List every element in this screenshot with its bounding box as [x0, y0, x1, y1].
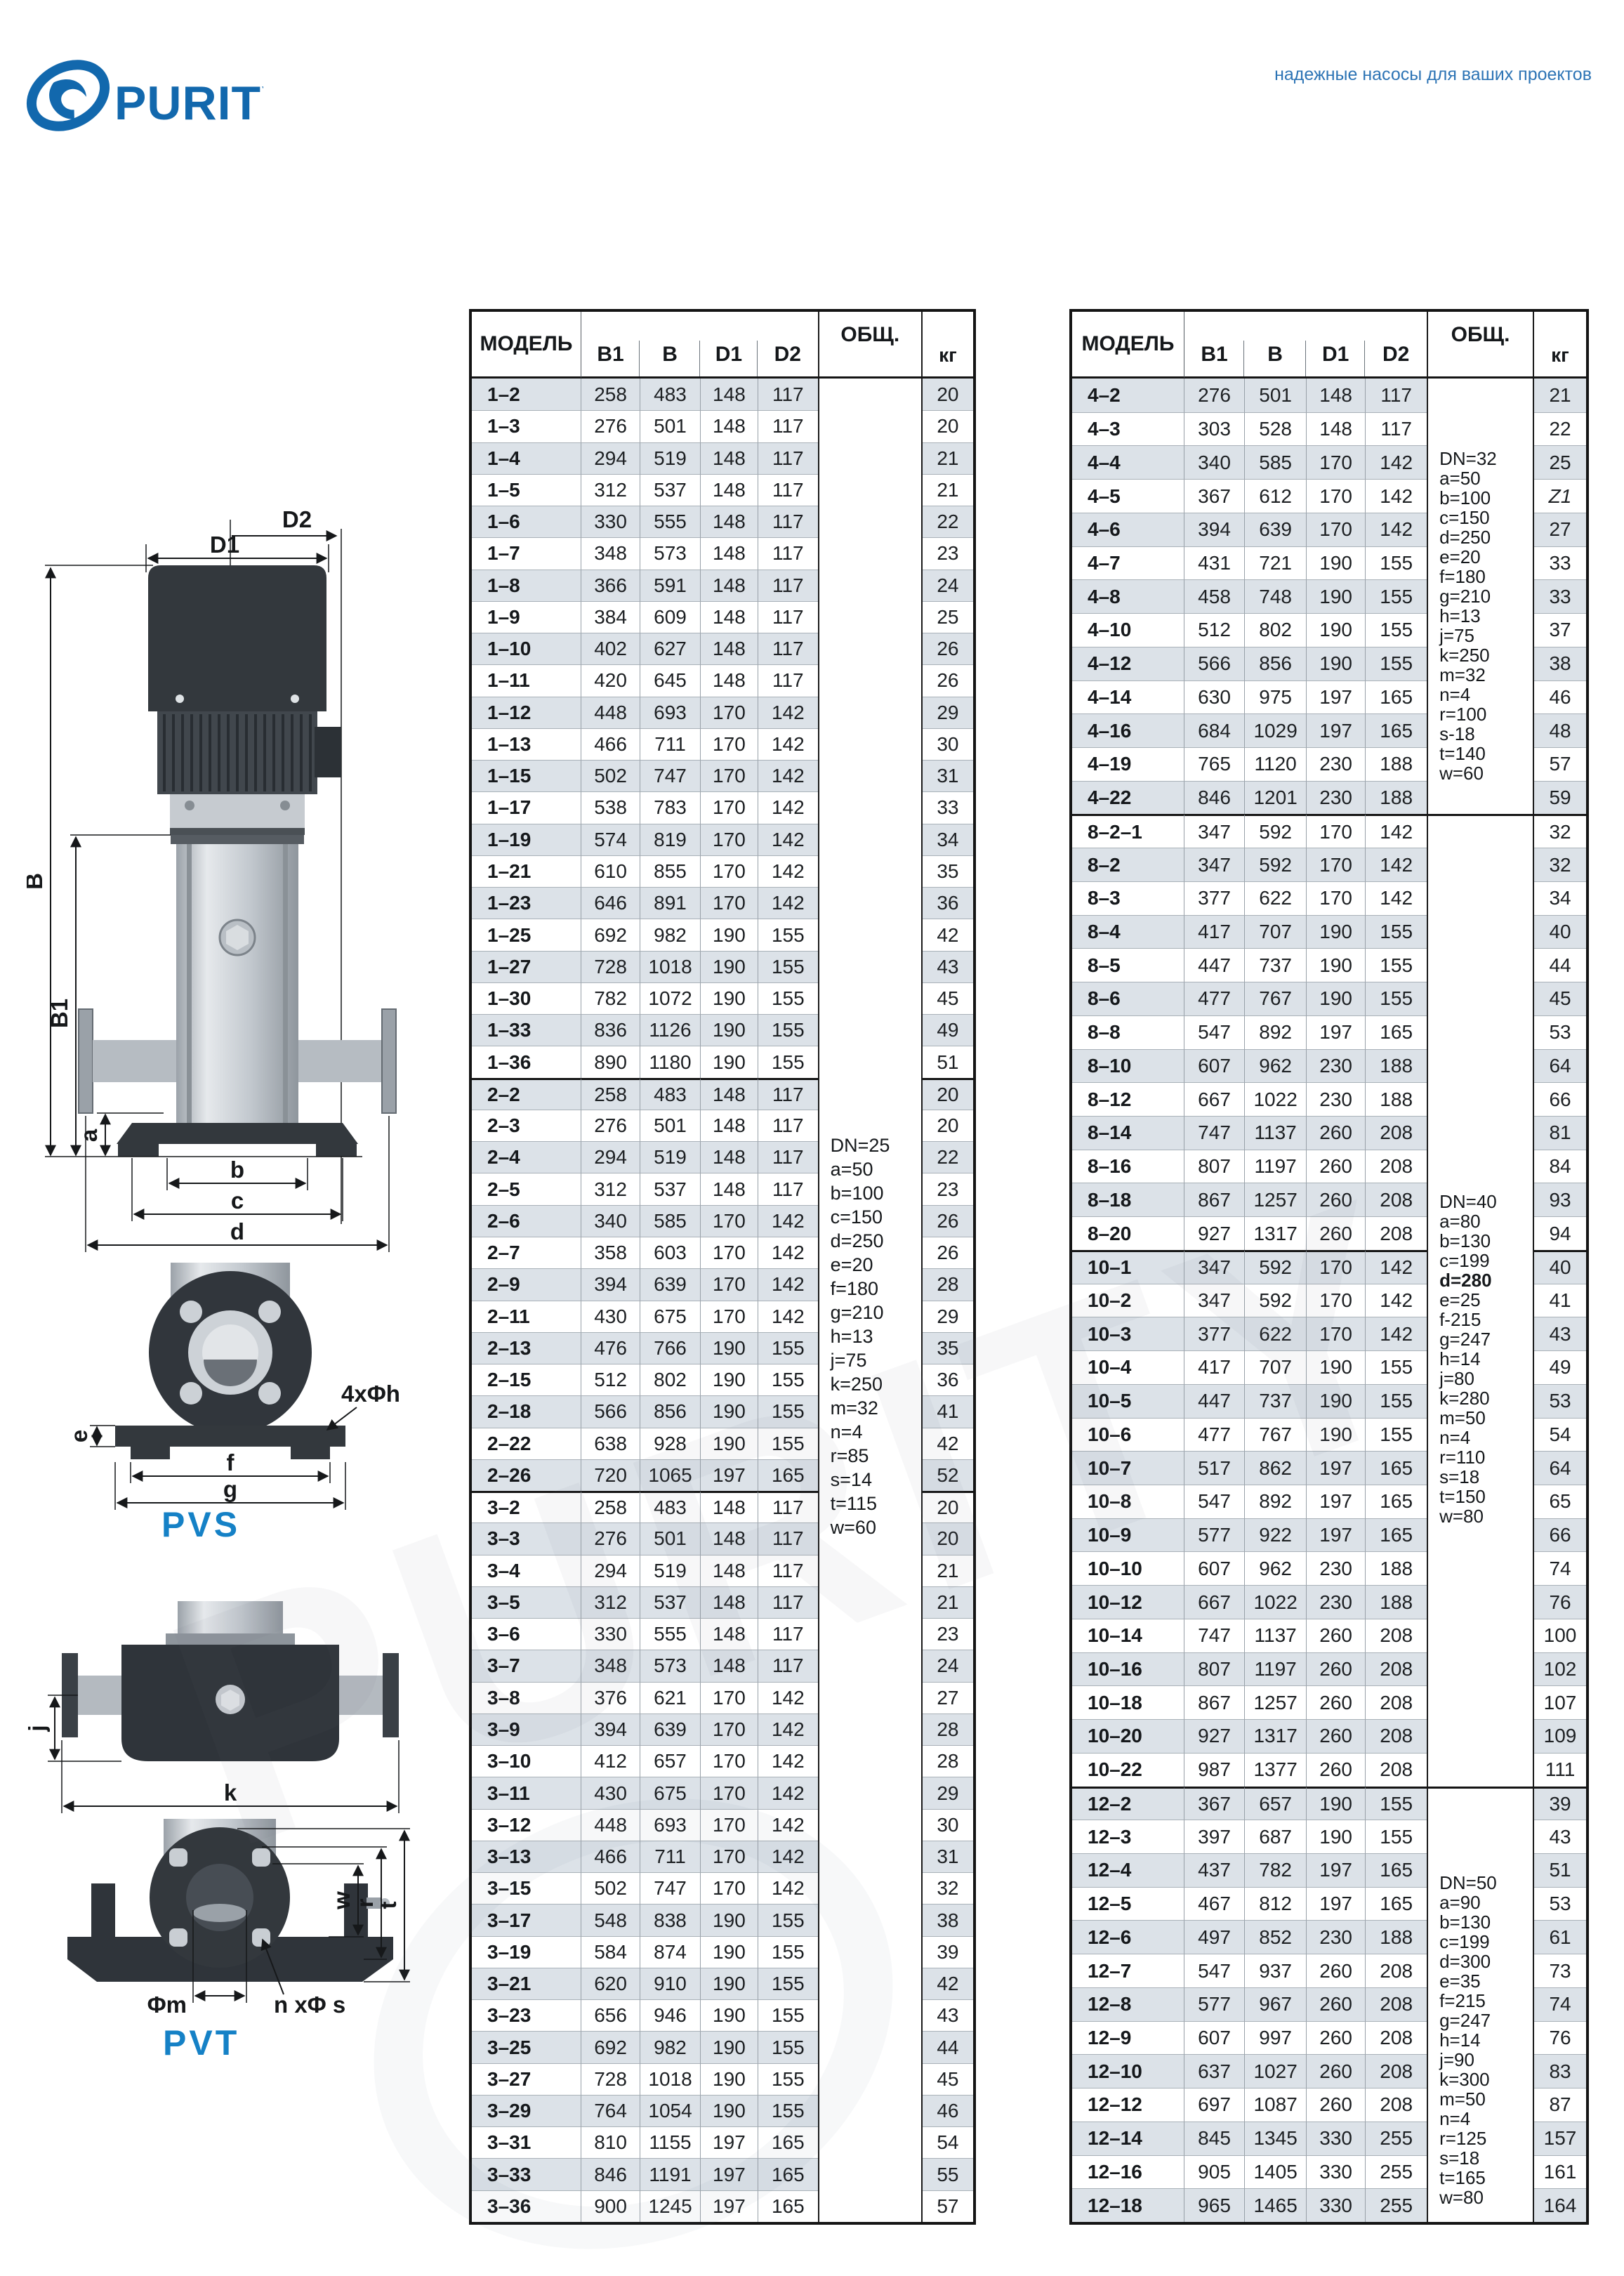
dim-cell: 1191	[640, 2158, 700, 2190]
dim-cell: 117	[758, 1141, 818, 1173]
dim-cell: 512	[581, 1364, 640, 1395]
dim-cell: 155	[758, 1968, 818, 1999]
dim-cell: 846	[581, 2158, 640, 2190]
dim-cell: 155	[1365, 1418, 1427, 1452]
weight-cell: 83	[1534, 2054, 1586, 2088]
header-kg: кг	[1534, 312, 1586, 379]
dim-cell: 348	[581, 537, 640, 569]
dim-cell: 477	[1184, 1418, 1244, 1452]
dim-cell: 117	[758, 601, 818, 633]
dim-cell: 142	[758, 1745, 818, 1777]
model-cell: 8–16	[1072, 1150, 1184, 1183]
note-line: t=115	[831, 1492, 877, 1515]
dim-cell: 230	[1306, 1049, 1365, 1083]
model-cell: 3–6	[472, 1618, 581, 1650]
model-cell: 10–16	[1072, 1652, 1184, 1686]
dim-cell: 170	[700, 824, 758, 855]
model-cell: 2–15	[472, 1364, 581, 1395]
dim-cell: 573	[640, 537, 700, 569]
dim-cell: 148	[700, 506, 758, 537]
dim-cell: 148	[700, 442, 758, 474]
dim-cell: 142	[1365, 479, 1427, 513]
weight-cell: 20	[923, 1110, 973, 1141]
dim-cell: 170	[1306, 881, 1365, 915]
dim-cell: 117	[758, 474, 818, 506]
dim-cell: 693	[640, 697, 700, 728]
model-cell: 4–8	[1072, 579, 1184, 613]
model-cell: 2–9	[472, 1268, 581, 1300]
dim-cell: 142	[758, 728, 818, 760]
dim-cell: 148	[700, 1650, 758, 1681]
dim-cell: 170	[700, 1237, 758, 1268]
dim-cell: 170	[700, 1205, 758, 1237]
dim-cell: 987	[1184, 1753, 1244, 1787]
weight-cell: 161	[1534, 2155, 1586, 2189]
dim-cell: 767	[1244, 1418, 1306, 1452]
dim-cell: 155	[1365, 1384, 1427, 1418]
dim-cell: 693	[640, 1809, 700, 1841]
weight-cell: 21	[923, 1586, 973, 1618]
dim-cell: 117	[758, 1618, 818, 1650]
weight-cell: 30	[923, 1809, 973, 1841]
dim-cell: 622	[1244, 881, 1306, 915]
dim-cell: 810	[581, 2126, 640, 2158]
dim-cell: 170	[700, 1713, 758, 1745]
dim-cell: 170	[700, 1682, 758, 1713]
dim-cell: 340	[581, 1205, 640, 1237]
dim-cell: 117	[758, 1110, 818, 1141]
note-line: w=60	[831, 1515, 876, 1539]
dim-cell: 117	[758, 537, 818, 569]
note-line: t=165	[1439, 2168, 1486, 2188]
dim-cell: 836	[581, 1014, 640, 1046]
dim-cell: 548	[581, 1904, 640, 1935]
model-cell: 8–3	[1072, 881, 1184, 915]
dim-cell: 1120	[1244, 747, 1306, 781]
dim-cell: 420	[581, 664, 640, 696]
dim-cell: 190	[1306, 915, 1365, 949]
dim-cell: 155	[758, 2031, 818, 2063]
weight-cell: 26	[923, 1237, 973, 1268]
dim-cell: 819	[640, 824, 700, 855]
motor-cap	[148, 565, 326, 711]
note-line: f=180	[1439, 567, 1486, 586]
dim-cell: 165	[1365, 1887, 1427, 1921]
dim-cell: 230	[1306, 781, 1365, 815]
dim-cell: 260	[1306, 1216, 1365, 1250]
dim-cell: 170	[1306, 445, 1365, 479]
dim-cell: 208	[1365, 1652, 1427, 1686]
weight-cell: 109	[1534, 1719, 1586, 1753]
page: PURITY надежные насосы для ваших проекто…	[0, 0, 1624, 2276]
dim-cell: 547	[1184, 1954, 1244, 1987]
model-cell: 1–36	[472, 1046, 581, 1077]
dim-cell: 276	[581, 1522, 640, 1554]
dim-cell: 997	[1244, 2021, 1306, 2055]
model-cell: 3–2	[472, 1491, 581, 1522]
note-line: w=60	[1439, 763, 1484, 783]
dim-cell: 330	[1306, 2155, 1365, 2189]
dim-cell: 607	[1184, 1551, 1244, 1585]
model-cell: 10–8	[1072, 1485, 1184, 1518]
dim-cell: 747	[1184, 1116, 1244, 1150]
dim-cell: 537	[640, 474, 700, 506]
note-line: e=25	[1439, 1290, 1481, 1310]
dim-label-r: r	[352, 1898, 378, 1907]
dim-cell: 208	[1365, 1150, 1427, 1183]
dim-cell: 148	[700, 474, 758, 506]
dim-cell: 142	[758, 1301, 818, 1332]
dim-cell: 208	[1365, 1954, 1427, 1987]
dim-cell: 148	[700, 1555, 758, 1586]
dim-label-g: g	[223, 1476, 237, 1502]
dim-cell: 258	[581, 1491, 640, 1522]
model-cell: 10–10	[1072, 1551, 1184, 1585]
weight-cell: 73	[1534, 1954, 1586, 1987]
note-line: h=14	[1439, 1349, 1481, 1369]
weight-cell: 59	[1534, 781, 1586, 815]
note-line: c=199	[1439, 1251, 1490, 1270]
note-line: w=80	[1439, 1506, 1484, 1526]
dim-cell: 607	[1184, 2021, 1244, 2055]
terminal-box	[315, 727, 341, 777]
dim-cell: 312	[581, 1586, 640, 1618]
dim-cell: 609	[640, 601, 700, 633]
dim-cell: 197	[700, 2126, 758, 2158]
dim-cell: 448	[581, 697, 640, 728]
model-cell: 2–6	[472, 1205, 581, 1237]
dim-cell: 497	[1184, 1920, 1244, 1954]
dim-cell: 190	[1306, 613, 1365, 647]
note-line: a=80	[1439, 1211, 1481, 1231]
weight-cell: 42	[923, 1428, 973, 1459]
dimensions-table-series-1-3: МОДЕЛЬB1BD1D2ОБЩ.кг1–2258483148117201–32…	[469, 309, 976, 2225]
model-cell: 8–2–1	[1072, 814, 1184, 848]
model-cell: 1–21	[472, 855, 581, 887]
weight-cell: 25	[923, 601, 973, 633]
dim-cell: 142	[758, 824, 818, 855]
dim-cell: 620	[581, 1968, 640, 1999]
dim-cell: 1180	[640, 1046, 700, 1077]
dim-cell: 117	[758, 1555, 818, 1586]
dim-label-b-height: B	[27, 873, 47, 890]
dim-cell: 412	[581, 1745, 640, 1777]
dim-label-base-b: b	[230, 1157, 244, 1183]
model-cell: 10–5	[1072, 1384, 1184, 1418]
note-line: h=13	[1439, 606, 1481, 626]
model-cell: 1–27	[472, 951, 581, 982]
dim-label-j: j	[27, 1725, 50, 1732]
coupling	[170, 794, 305, 834]
dim-cell: 197	[1306, 1451, 1365, 1485]
weight-cell: 38	[923, 1904, 973, 1935]
dim-cell: 910	[640, 1968, 700, 1999]
dim-cell: 170	[1306, 814, 1365, 848]
dim-cell: 197	[700, 1459, 758, 1491]
model-cell: 4–7	[1072, 546, 1184, 580]
dim-cell: 148	[700, 664, 758, 696]
dim-cell: 165	[1365, 1485, 1427, 1518]
pvs-front-view-drawing: 4xΦh e f g	[27, 1263, 434, 1515]
model-cell: 10–1	[1072, 1250, 1184, 1284]
dim-cell: 856	[1244, 647, 1306, 680]
note-line: s=18	[1439, 1467, 1479, 1487]
weight-cell: 66	[1534, 1518, 1586, 1552]
weight-cell: 23	[923, 1173, 973, 1204]
dim-cell: 867	[1184, 1685, 1244, 1719]
weight-cell: 32	[1534, 814, 1586, 848]
dim-cell: 348	[581, 1650, 640, 1681]
weight-cell: 57	[923, 2190, 973, 2222]
model-cell: 12–16	[1072, 2155, 1184, 2189]
dim-cell: 260	[1306, 1116, 1365, 1150]
dim-cell: 155	[758, 1395, 818, 1427]
dim-cell: 155	[1365, 948, 1427, 982]
weight-cell: 41	[923, 1395, 973, 1427]
note-line: b=130	[1439, 1912, 1491, 1932]
dim-cell: 639	[640, 1713, 700, 1745]
dim-cell: 258	[581, 379, 640, 410]
weight-cell: 64	[1534, 1049, 1586, 1083]
model-cell: 2–13	[472, 1332, 581, 1364]
dim-cell: 707	[1244, 915, 1306, 949]
dim-cell: 188	[1365, 1082, 1427, 1116]
dim-cell: 148	[1306, 412, 1365, 446]
dim-cell: 1087	[1244, 2088, 1306, 2122]
dim-cell: 639	[1244, 513, 1306, 546]
model-cell: 1–9	[472, 601, 581, 633]
dim-cell: 170	[1306, 1284, 1365, 1317]
note-line: d=280	[1439, 1270, 1491, 1290]
dim-cell: 764	[581, 2095, 640, 2126]
weight-cell: 157	[1534, 2122, 1586, 2155]
weight-cell: 49	[1534, 1350, 1586, 1384]
note-line: j=75	[831, 1348, 867, 1372]
model-cell: 3–23	[472, 1999, 581, 2031]
dim-cell: 747	[640, 1872, 700, 1904]
dim-cell: 117	[758, 1173, 818, 1204]
dim-cell: 190	[1306, 1350, 1365, 1384]
discharge-port	[298, 1040, 382, 1082]
dim-cell: 208	[1365, 1216, 1427, 1250]
dim-cell: 170	[700, 728, 758, 760]
dim-cell: 612	[1244, 479, 1306, 513]
weight-cell: 34	[923, 824, 973, 855]
note-line: r=85	[831, 1444, 869, 1468]
model-cell: 4–5	[1072, 479, 1184, 513]
dim-label-t: t	[375, 1902, 401, 1909]
dim-cell: 358	[581, 1237, 640, 1268]
dim-cell: 807	[1184, 1652, 1244, 1686]
header-d1: D1	[1306, 312, 1365, 379]
dim-cell: 728	[581, 951, 640, 982]
model-cell: 3–11	[472, 1777, 581, 1808]
dim-label-b1-height: B1	[46, 999, 72, 1028]
model-cell: 2–2	[472, 1078, 581, 1110]
dim-cell: 1345	[1244, 2122, 1306, 2155]
dim-cell: 845	[1184, 2122, 1244, 2155]
model-cell: 1–25	[472, 919, 581, 950]
dim-cell: 190	[1306, 982, 1365, 1015]
dim-cell: 330	[1306, 2122, 1365, 2155]
dim-cell: 155	[758, 1046, 818, 1077]
weight-cell: 74	[1534, 1987, 1586, 2021]
dim-cell: 1054	[640, 2095, 700, 2126]
dim-cell: 142	[758, 887, 818, 919]
dim-cell: 155	[1365, 1350, 1427, 1384]
dim-label-n-phi-s: n xΦ s	[274, 1992, 345, 2018]
dim-cell: 208	[1365, 2054, 1427, 2088]
dim-cell: 982	[640, 919, 700, 950]
note-line: DN=32	[1439, 449, 1497, 468]
dim-cell: 190	[700, 1046, 758, 1077]
dim-cell: 937	[1244, 1954, 1306, 1987]
dim-cell: 142	[758, 1682, 818, 1713]
model-cell: 4–22	[1072, 781, 1184, 815]
dim-cell: 638	[581, 1428, 640, 1459]
dim-cell: 303	[1184, 412, 1244, 446]
dim-cell: 142	[758, 1841, 818, 1872]
dim-cell: 142	[1365, 445, 1427, 479]
right-flange	[383, 1653, 399, 1737]
weight-cell: 28	[923, 1713, 973, 1745]
model-cell: 3–9	[472, 1713, 581, 1745]
dim-cell: 117	[758, 664, 818, 696]
dim-cell: 197	[1306, 1485, 1365, 1518]
model-cell: 1–7	[472, 537, 581, 569]
dim-cell: 142	[1365, 1250, 1427, 1284]
dim-cell: 720	[581, 1459, 640, 1491]
dim-cell: 501	[640, 1110, 700, 1141]
dim-cell: 190	[1306, 1384, 1365, 1418]
note-line: DN=40	[1439, 1192, 1497, 1211]
dim-cell: 155	[758, 1364, 818, 1395]
dim-cell: 190	[700, 1999, 758, 2031]
model-cell: 1–10	[472, 633, 581, 664]
note-line: t=140	[1439, 744, 1486, 763]
note-line: j=75	[1439, 626, 1474, 645]
dim-cell: 148	[700, 633, 758, 664]
dim-cell: 447	[1184, 948, 1244, 982]
weight-cell: 74	[1534, 1551, 1586, 1585]
weight-cell: 76	[1534, 1585, 1586, 1619]
model-cell: 12–7	[1072, 1954, 1184, 1987]
weight-cell: 31	[923, 1841, 973, 1872]
model-cell: 10–9	[1072, 1518, 1184, 1552]
dim-cell: 148	[1306, 379, 1365, 412]
dim-cell: 148	[700, 1110, 758, 1141]
dim-label-base-c: c	[231, 1188, 244, 1213]
dim-cell: 170	[1306, 513, 1365, 546]
dim-cell: 190	[700, 1904, 758, 1935]
dim-cell: 692	[581, 919, 640, 950]
dim-cell: 165	[758, 2190, 818, 2222]
dim-cell: 667	[1184, 1585, 1244, 1619]
dim-cell: 170	[700, 1745, 758, 1777]
weight-cell: 20	[923, 379, 973, 410]
dim-cell: 155	[1365, 647, 1427, 680]
model-cell: 1–8	[472, 570, 581, 601]
dim-cell: 190	[1306, 579, 1365, 613]
dim-cell: 148	[700, 1173, 758, 1204]
dim-cell: 517	[1184, 1451, 1244, 1485]
note-line: n=4	[831, 1420, 863, 1444]
dim-cell: 155	[758, 951, 818, 982]
model-cell: 3–8	[472, 1682, 581, 1713]
note-line: m=32	[1439, 665, 1486, 685]
dim-cell: 512	[1184, 613, 1244, 647]
dim-cell: 747	[1184, 1619, 1244, 1652]
dim-cell: 657	[1244, 1787, 1306, 1820]
dim-cell: 483	[640, 379, 700, 410]
dim-cell: 458	[1184, 579, 1244, 613]
weight-cell: 40	[1534, 1250, 1586, 1284]
weight-cell: 81	[1534, 1116, 1586, 1150]
model-cell: 4–6	[1072, 513, 1184, 546]
dim-cell: 148	[700, 410, 758, 442]
dim-cell: 975	[1244, 680, 1306, 714]
dim-cell: 748	[1244, 579, 1306, 613]
dim-cell: 782	[581, 982, 640, 1014]
weight-cell: 39	[1534, 1787, 1586, 1820]
note-line: r=110	[1439, 1447, 1485, 1467]
dim-cell: 555	[640, 506, 700, 537]
model-cell: 1–15	[472, 760, 581, 791]
dim-cell: 142	[758, 1268, 818, 1300]
dim-cell: 197	[1306, 1518, 1365, 1552]
model-cell: 1–13	[472, 728, 581, 760]
dim-cell: 260	[1306, 1753, 1365, 1787]
note-line: b=130	[1439, 1231, 1491, 1251]
model-cell: 2–5	[472, 1173, 581, 1204]
dim-cell: 639	[640, 1268, 700, 1300]
model-cell: 2–3	[472, 1110, 581, 1141]
model-cell: 12–8	[1072, 1987, 1184, 2021]
model-cell: 3–36	[472, 2190, 581, 2222]
dim-cell: 117	[758, 1522, 818, 1554]
dim-label-d1: D1	[210, 532, 239, 558]
header-d1: D1	[700, 312, 758, 379]
dim-cell: 657	[640, 1745, 700, 1777]
note-line: e=20	[1439, 547, 1481, 567]
dim-cell: 747	[640, 760, 700, 791]
dim-cell: 170	[700, 855, 758, 887]
model-cell: 2–4	[472, 1141, 581, 1173]
weight-cell: 23	[923, 537, 973, 569]
dim-cell: 117	[1365, 412, 1427, 446]
dim-cell: 170	[1306, 848, 1365, 881]
dim-cell: 117	[758, 633, 818, 664]
dim-label-k: k	[224, 1780, 237, 1805]
dim-cell: 276	[581, 1110, 640, 1141]
dim-cell: 566	[581, 1395, 640, 1427]
dim-cell: 188	[1365, 1585, 1427, 1619]
weight-cell: 53	[1534, 1887, 1586, 1921]
dim-cell: 197	[1306, 680, 1365, 714]
dim-cell: 148	[700, 1522, 758, 1554]
pvt-section-drawing: w r t Φm n xΦ s	[27, 1819, 434, 2037]
model-cell: 1–30	[472, 982, 581, 1014]
model-cell: 1–4	[472, 442, 581, 474]
model-cell: 3–12	[472, 1809, 581, 1841]
dim-cell: 577	[1184, 1518, 1244, 1552]
weight-cell: 23	[923, 1618, 973, 1650]
dim-cell: 476	[581, 1332, 640, 1364]
dim-cell: 142	[758, 1872, 818, 1904]
dim-cell: 646	[581, 887, 640, 919]
dim-cell: 874	[640, 1936, 700, 1968]
dim-cell: 802	[640, 1364, 700, 1395]
